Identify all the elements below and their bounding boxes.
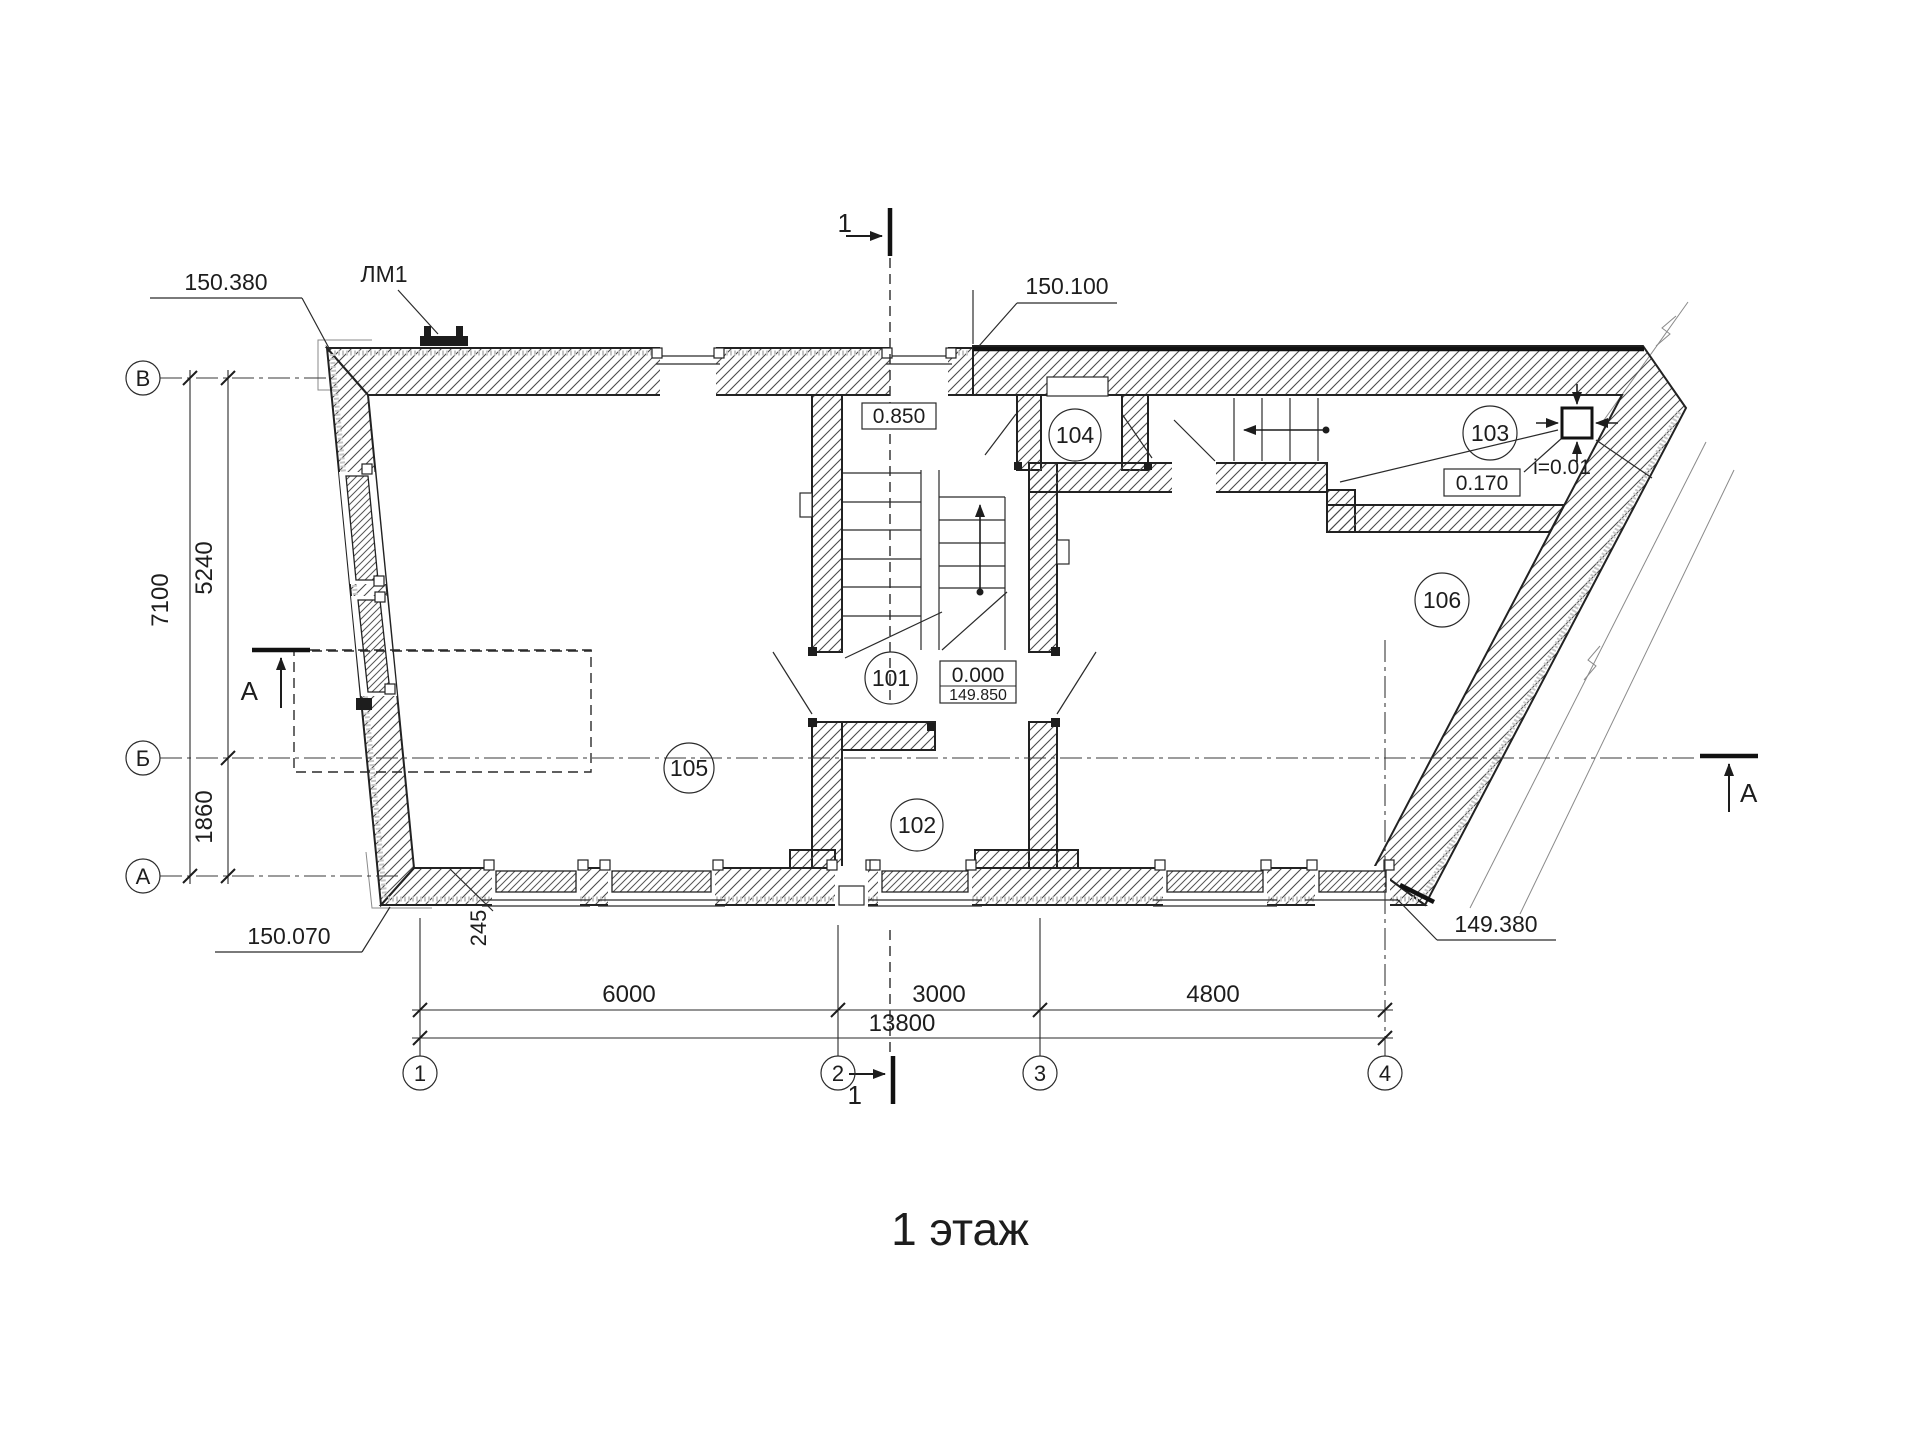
dim-bottom-seg1: 6000 <box>602 981 655 1008</box>
axis-row-B: В <box>136 366 151 391</box>
niche-104 <box>1047 377 1108 396</box>
dim-bottom-seg3: 4800 <box>1186 981 1239 1008</box>
dim-left-upper: 5240 <box>191 541 218 594</box>
room-101: 101 <box>872 665 910 691</box>
stair-break-line <box>845 612 942 658</box>
entrance-threshold <box>839 886 864 905</box>
axis-row-B2: Б <box>136 746 150 771</box>
axis-col-1: 1 <box>414 1061 426 1086</box>
axis-row-A: А <box>136 864 151 889</box>
level-top-middle: 150.100 <box>1025 273 1108 299</box>
bottom-wall-windows <box>482 860 1398 907</box>
axis-col-4: 4 <box>1379 1061 1391 1086</box>
section-1-label-top: 1 <box>838 208 852 238</box>
wall-105-101 <box>812 395 842 652</box>
pier-center <box>975 850 1078 868</box>
level-top-left: 150.380 <box>184 269 267 295</box>
floor-plan-sheet: 1 1 А А 7100 5240 1860 6000 3000 4800 1 <box>0 0 1920 1440</box>
entrance-canopy <box>420 326 468 346</box>
room-105: 105 <box>670 755 708 781</box>
section-A-label-right: А <box>1740 778 1758 808</box>
level-ramp: 0.170 <box>1456 472 1509 495</box>
room-104: 104 <box>1056 422 1095 448</box>
opening-above-outline <box>294 650 591 772</box>
level-landing: 0.850 <box>873 405 926 428</box>
section-A-label-left: А <box>241 676 259 706</box>
main-stair <box>843 470 1007 658</box>
wall-102-nook <box>842 722 935 750</box>
level-bottom-right: 149.380 <box>1454 911 1537 937</box>
entrance-label: ЛМ1 <box>360 261 407 287</box>
section-line-1: 1 1 <box>838 208 893 1110</box>
dim-left-total: 7100 <box>147 573 174 626</box>
dim-left-lower: 1860 <box>191 790 218 843</box>
ramp-steps <box>1234 398 1330 461</box>
level-floor-rel: 0.000 <box>952 664 1005 687</box>
floor-drain <box>1562 408 1592 438</box>
room-106: 106 <box>1423 587 1461 613</box>
wall-104-left <box>1017 395 1041 470</box>
level-bottom-left: 150.070 <box>247 923 330 949</box>
room-102: 102 <box>898 812 936 838</box>
level-floor-abs: 149.850 <box>949 687 1007 704</box>
dim-wall-offset: 245 <box>466 910 491 947</box>
wall-106-top-low <box>1327 505 1564 532</box>
floor-plan-drawing: 1 1 А А 7100 5240 1860 6000 3000 4800 1 <box>0 0 1920 1440</box>
slope-label: i=0.01 <box>1533 456 1591 479</box>
dim-bottom-total: 13800 <box>869 1010 936 1037</box>
dim-bottom-seg2: 3000 <box>912 981 965 1008</box>
sheet-title: 1 этаж <box>891 1203 1029 1255</box>
room-103: 103 <box>1471 420 1509 446</box>
axis-col-2: 2 <box>832 1061 844 1086</box>
axis-col-3: 3 <box>1034 1061 1046 1086</box>
